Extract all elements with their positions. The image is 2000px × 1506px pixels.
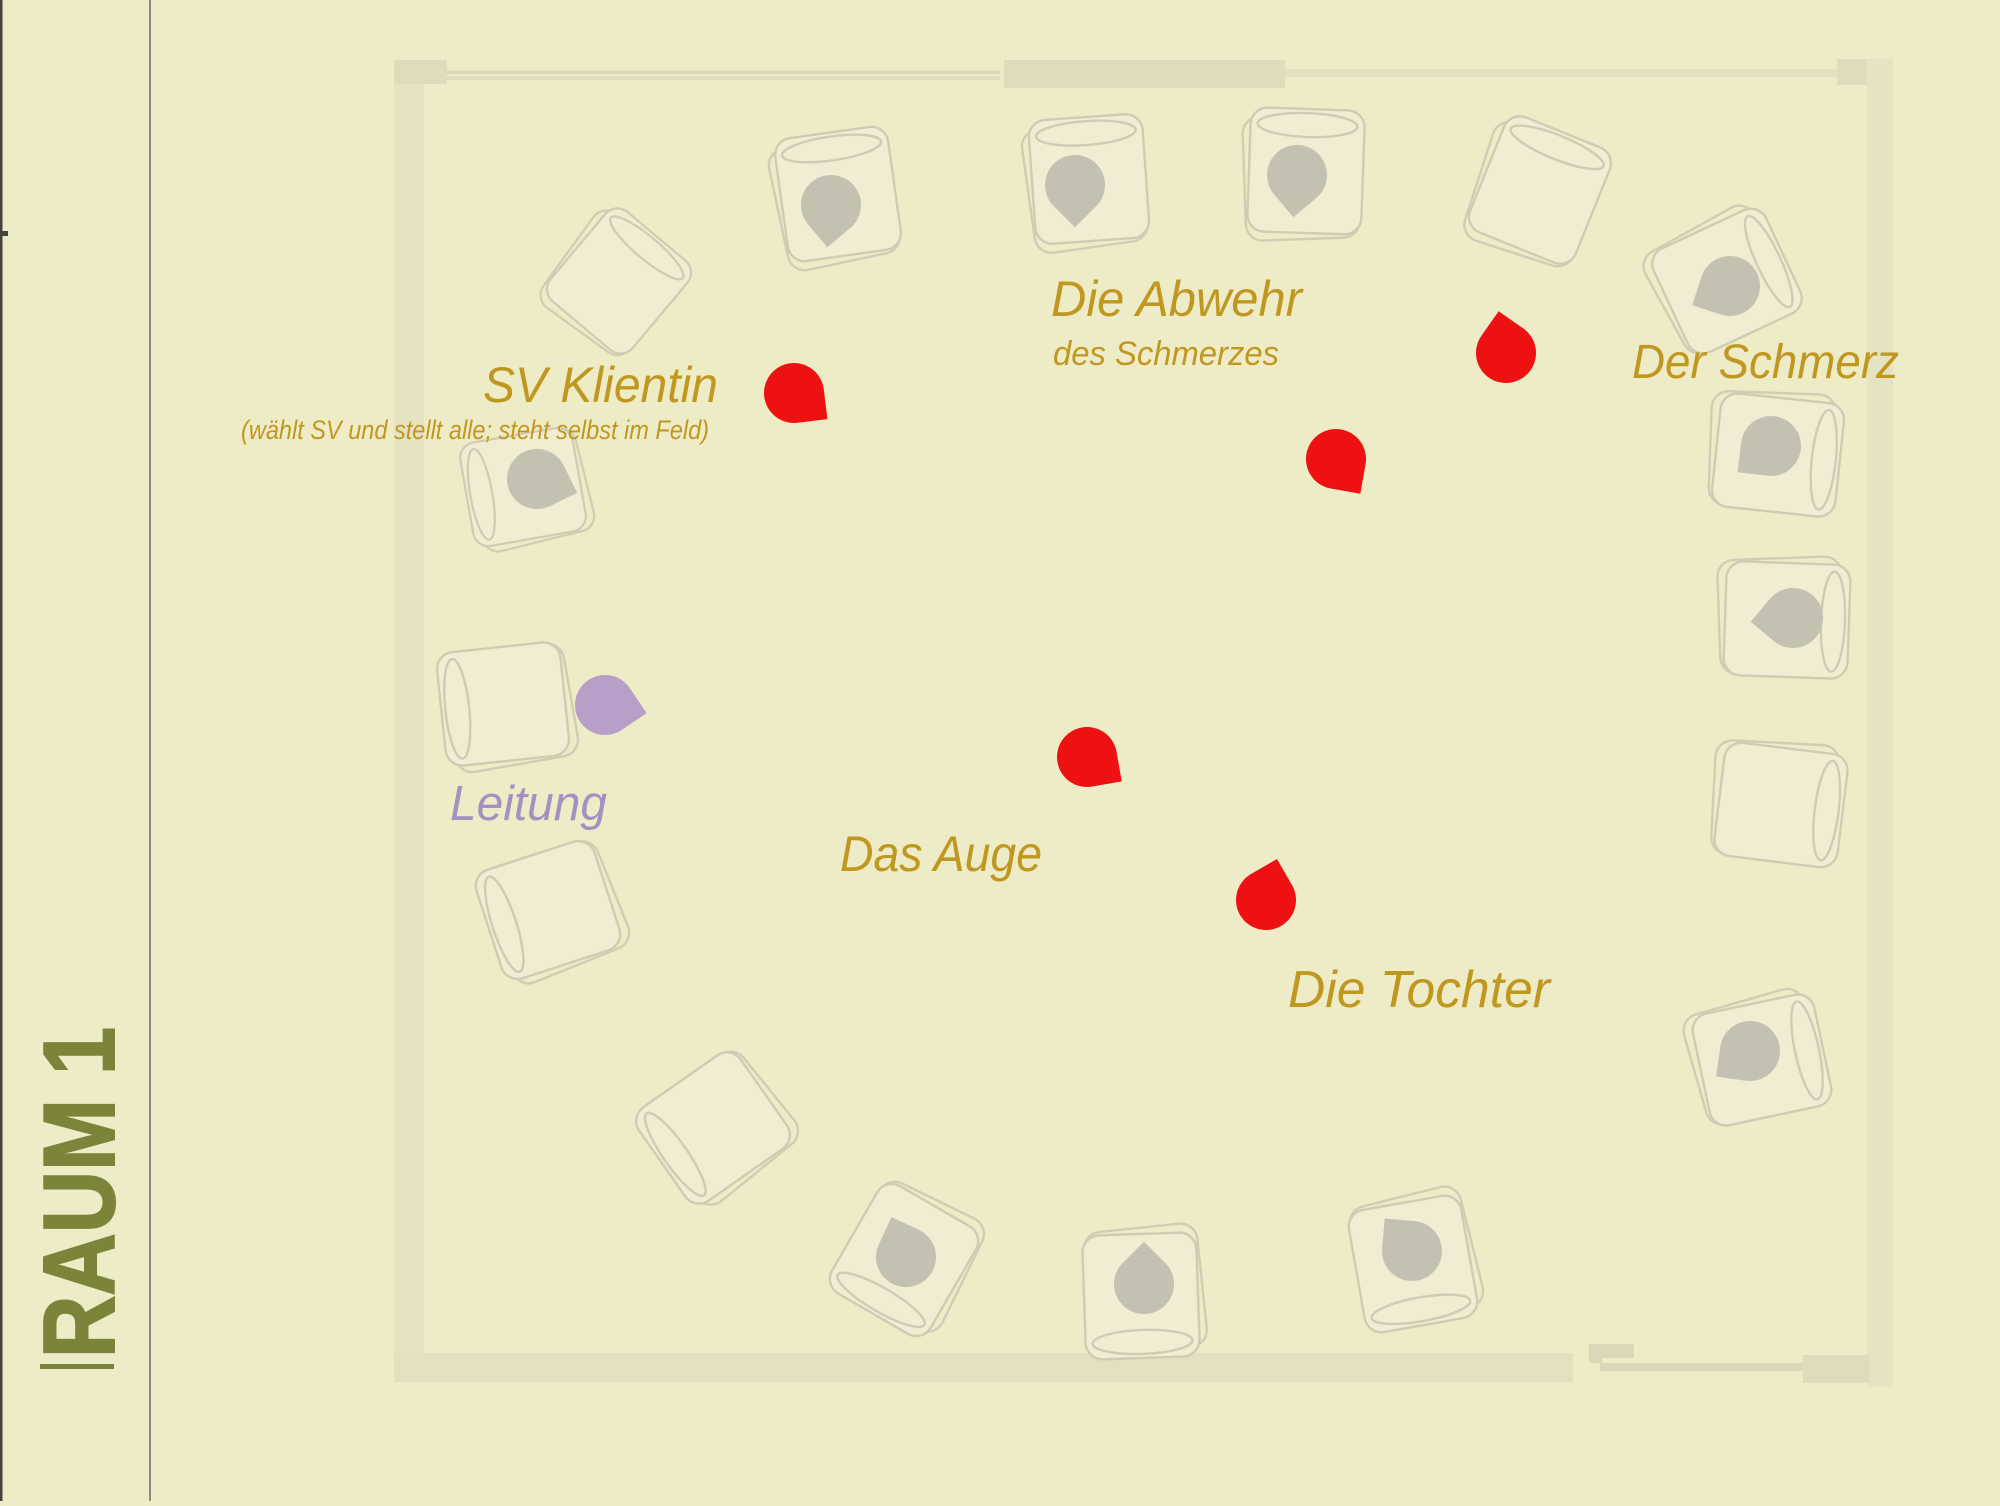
svg-text:(wählt SV und stellt alle; ste: (wählt SV und stellt alle; steht selbst … (241, 415, 709, 445)
svg-text:RAUM 1: RAUM 1 (24, 1027, 136, 1358)
svg-text:Das Auge: Das Auge (840, 826, 1042, 882)
svg-text:Die Tochter: Die Tochter (1288, 961, 1553, 1019)
svg-text:des Schmerzes: des Schmerzes (1053, 335, 1279, 373)
svg-text:Die Abwehr: Die Abwehr (1051, 271, 1304, 327)
svg-text:Der Schmerz: Der Schmerz (1632, 336, 1899, 389)
svg-text:SV Klientin: SV Klientin (483, 357, 718, 413)
svg-text:Leitung: Leitung (450, 777, 607, 831)
